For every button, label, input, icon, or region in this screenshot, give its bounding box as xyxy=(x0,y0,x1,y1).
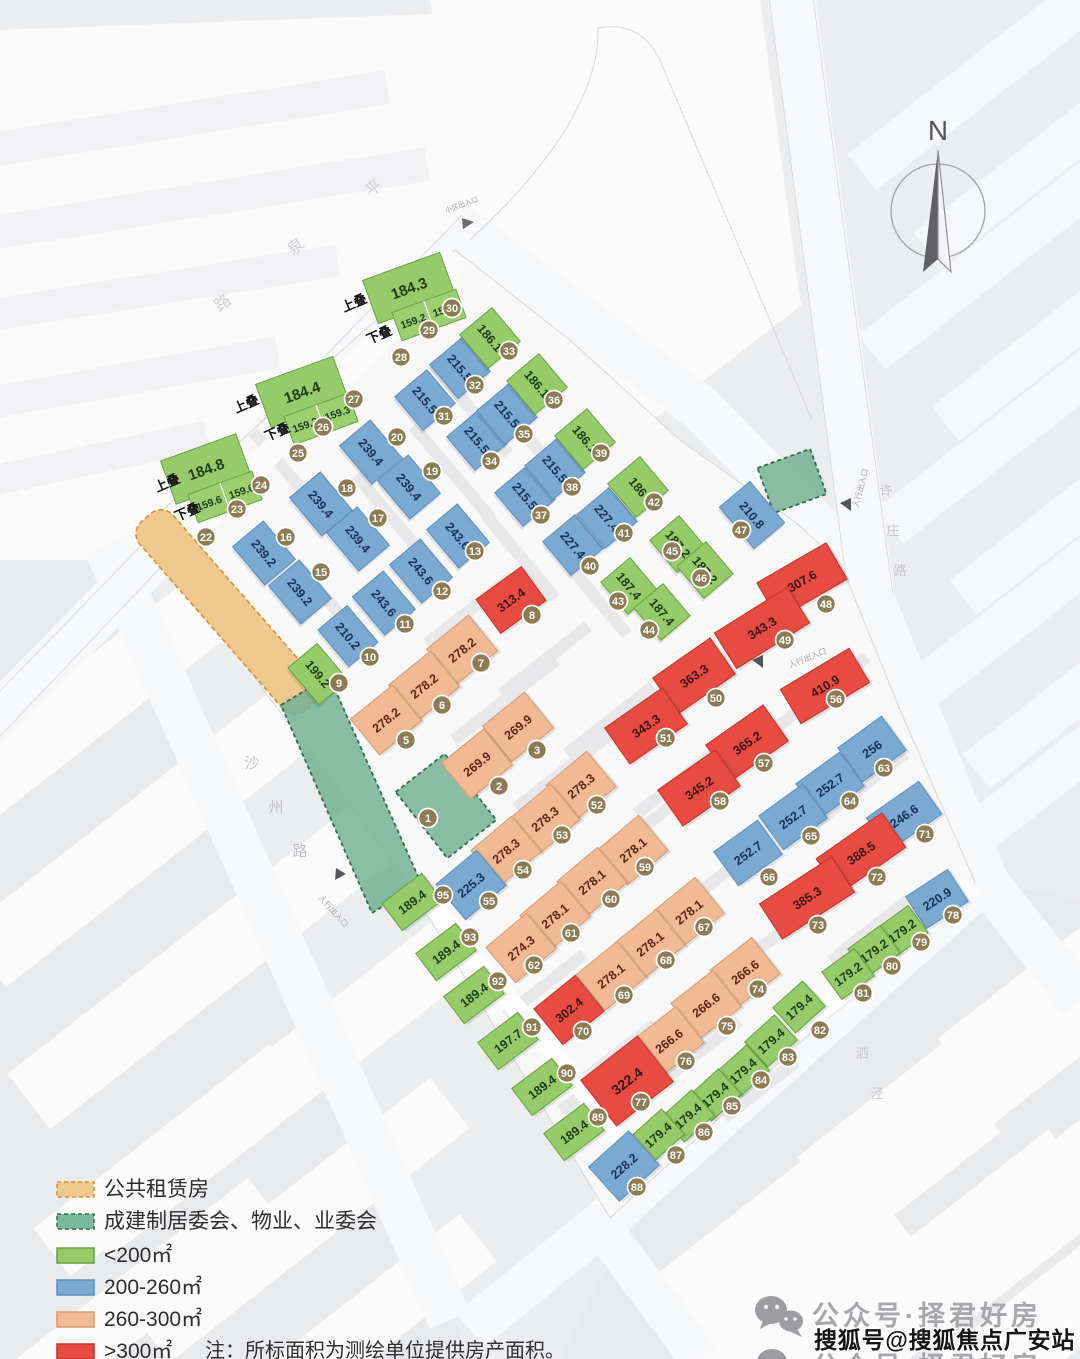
svg-text:29: 29 xyxy=(423,325,435,337)
svg-text:74: 74 xyxy=(752,984,765,996)
svg-text:36: 36 xyxy=(548,395,560,407)
svg-text:58: 58 xyxy=(714,796,726,808)
svg-text:11: 11 xyxy=(399,619,411,631)
svg-text:48: 48 xyxy=(820,599,832,611)
svg-text:公众号·择君好房: 公众号·择君好房 xyxy=(812,1352,1042,1359)
svg-text:搜狐号@搜狐焦点广安站: 搜狐号@搜狐焦点广安站 xyxy=(814,1327,1075,1353)
svg-text:54: 54 xyxy=(517,865,530,877)
svg-text:64: 64 xyxy=(844,796,857,808)
svg-text:92: 92 xyxy=(492,976,504,988)
svg-text:53: 53 xyxy=(556,830,568,842)
svg-text:80: 80 xyxy=(886,961,898,973)
svg-text:17: 17 xyxy=(372,513,384,525)
svg-text:63: 63 xyxy=(878,763,890,775)
svg-text:41: 41 xyxy=(618,528,630,540)
svg-text:1: 1 xyxy=(425,813,431,825)
svg-text:42: 42 xyxy=(648,497,660,509)
svg-text:12: 12 xyxy=(436,586,448,598)
svg-text:83: 83 xyxy=(782,1052,794,1064)
svg-text:90: 90 xyxy=(561,1068,573,1080)
svg-text:51: 51 xyxy=(660,733,672,745)
svg-text:56: 56 xyxy=(830,694,842,706)
svg-text:28: 28 xyxy=(395,352,407,364)
svg-text:71: 71 xyxy=(919,829,931,841)
svg-text:65: 65 xyxy=(805,831,817,843)
svg-text:路: 路 xyxy=(292,843,307,860)
svg-text:73: 73 xyxy=(812,920,824,932)
svg-text:82: 82 xyxy=(814,1025,826,1037)
svg-text:79: 79 xyxy=(915,937,927,949)
svg-text:59: 59 xyxy=(639,862,651,874)
svg-text:>300㎡: >300㎡ xyxy=(104,1339,172,1359)
svg-text:35: 35 xyxy=(518,429,530,441)
svg-text:34: 34 xyxy=(485,456,498,468)
svg-text:44: 44 xyxy=(643,625,656,637)
svg-text:15: 15 xyxy=(315,567,327,579)
svg-text:30: 30 xyxy=(446,303,458,315)
svg-text:成建制居委会、物业、业委会: 成建制居委会、物业、业委会 xyxy=(104,1210,377,1233)
svg-text:85: 85 xyxy=(726,1101,738,1113)
svg-text:47: 47 xyxy=(735,525,747,537)
svg-text:公共租赁房: 公共租赁房 xyxy=(104,1178,209,1201)
svg-text:55: 55 xyxy=(483,896,495,908)
svg-text:23: 23 xyxy=(231,504,243,516)
svg-text:57: 57 xyxy=(758,758,770,770)
svg-text:22: 22 xyxy=(200,532,212,544)
svg-text:88: 88 xyxy=(631,1182,643,1194)
svg-text:69: 69 xyxy=(618,990,630,1002)
svg-text:45: 45 xyxy=(666,546,678,558)
svg-text:49: 49 xyxy=(779,635,791,647)
svg-text:66: 66 xyxy=(763,872,775,884)
svg-text:18: 18 xyxy=(341,483,353,495)
svg-text:84: 84 xyxy=(755,1075,768,1087)
svg-text:许: 许 xyxy=(879,483,892,498)
svg-text:沙: 沙 xyxy=(244,755,259,772)
svg-text:27: 27 xyxy=(348,394,360,406)
svg-text:61: 61 xyxy=(565,928,577,940)
svg-text:20: 20 xyxy=(391,432,403,444)
svg-text:5: 5 xyxy=(403,735,409,747)
svg-text:260-300㎡: 260-300㎡ xyxy=(104,1307,202,1331)
svg-text:70: 70 xyxy=(577,1026,589,1038)
svg-text:60: 60 xyxy=(605,894,617,906)
svg-text:72: 72 xyxy=(871,872,883,884)
svg-text:76: 76 xyxy=(680,1056,692,1068)
svg-text:67: 67 xyxy=(698,922,710,934)
svg-text:泗: 泗 xyxy=(855,1046,868,1061)
svg-text:40: 40 xyxy=(584,561,596,573)
svg-text:13: 13 xyxy=(469,546,481,558)
svg-text:25: 25 xyxy=(292,448,304,460)
svg-text:3: 3 xyxy=(534,745,540,757)
svg-text:9: 9 xyxy=(336,678,342,690)
svg-text:78: 78 xyxy=(947,910,959,922)
svg-text:87: 87 xyxy=(670,1150,682,1162)
svg-text:200-260㎡: 200-260㎡ xyxy=(104,1275,202,1299)
svg-text:26: 26 xyxy=(317,422,329,434)
svg-text:37: 37 xyxy=(535,510,547,522)
svg-text:24: 24 xyxy=(255,480,268,492)
svg-text:州: 州 xyxy=(268,799,283,816)
svg-text:86: 86 xyxy=(698,1127,710,1139)
svg-text:33: 33 xyxy=(503,346,515,358)
svg-text:39: 39 xyxy=(595,448,607,460)
svg-text:31: 31 xyxy=(438,411,450,423)
svg-text:10: 10 xyxy=(364,652,376,664)
svg-text:2: 2 xyxy=(496,781,502,793)
svg-text:6: 6 xyxy=(439,700,445,712)
svg-text:68: 68 xyxy=(660,955,672,967)
svg-text:庄: 庄 xyxy=(886,523,899,538)
svg-text:38: 38 xyxy=(566,482,578,494)
svg-text:路: 路 xyxy=(893,563,906,578)
svg-text:95: 95 xyxy=(437,890,449,902)
svg-text:81: 81 xyxy=(857,988,869,1000)
svg-text:N: N xyxy=(928,115,948,146)
svg-text:93: 93 xyxy=(464,932,476,944)
svg-text:91: 91 xyxy=(526,1022,538,1034)
svg-text:43: 43 xyxy=(612,596,624,608)
svg-text:75: 75 xyxy=(721,1021,733,1033)
svg-text:8: 8 xyxy=(529,610,535,622)
svg-text:46: 46 xyxy=(695,573,707,585)
svg-text:50: 50 xyxy=(710,693,722,705)
svg-text:7: 7 xyxy=(478,658,484,670)
svg-text:52: 52 xyxy=(591,800,603,812)
svg-text:77: 77 xyxy=(635,1097,647,1109)
svg-text:16: 16 xyxy=(280,532,292,544)
svg-text:32: 32 xyxy=(469,380,481,392)
svg-text:19: 19 xyxy=(426,466,438,478)
svg-text:泾: 泾 xyxy=(870,1086,883,1101)
svg-text:89: 89 xyxy=(592,1112,604,1124)
svg-text:62: 62 xyxy=(528,960,540,972)
svg-text:<200㎡: <200㎡ xyxy=(104,1243,172,1267)
svg-text:注：所标面积为测绘单位提供房产面积。: 注：所标面积为测绘单位提供房产面积。 xyxy=(205,1339,565,1359)
